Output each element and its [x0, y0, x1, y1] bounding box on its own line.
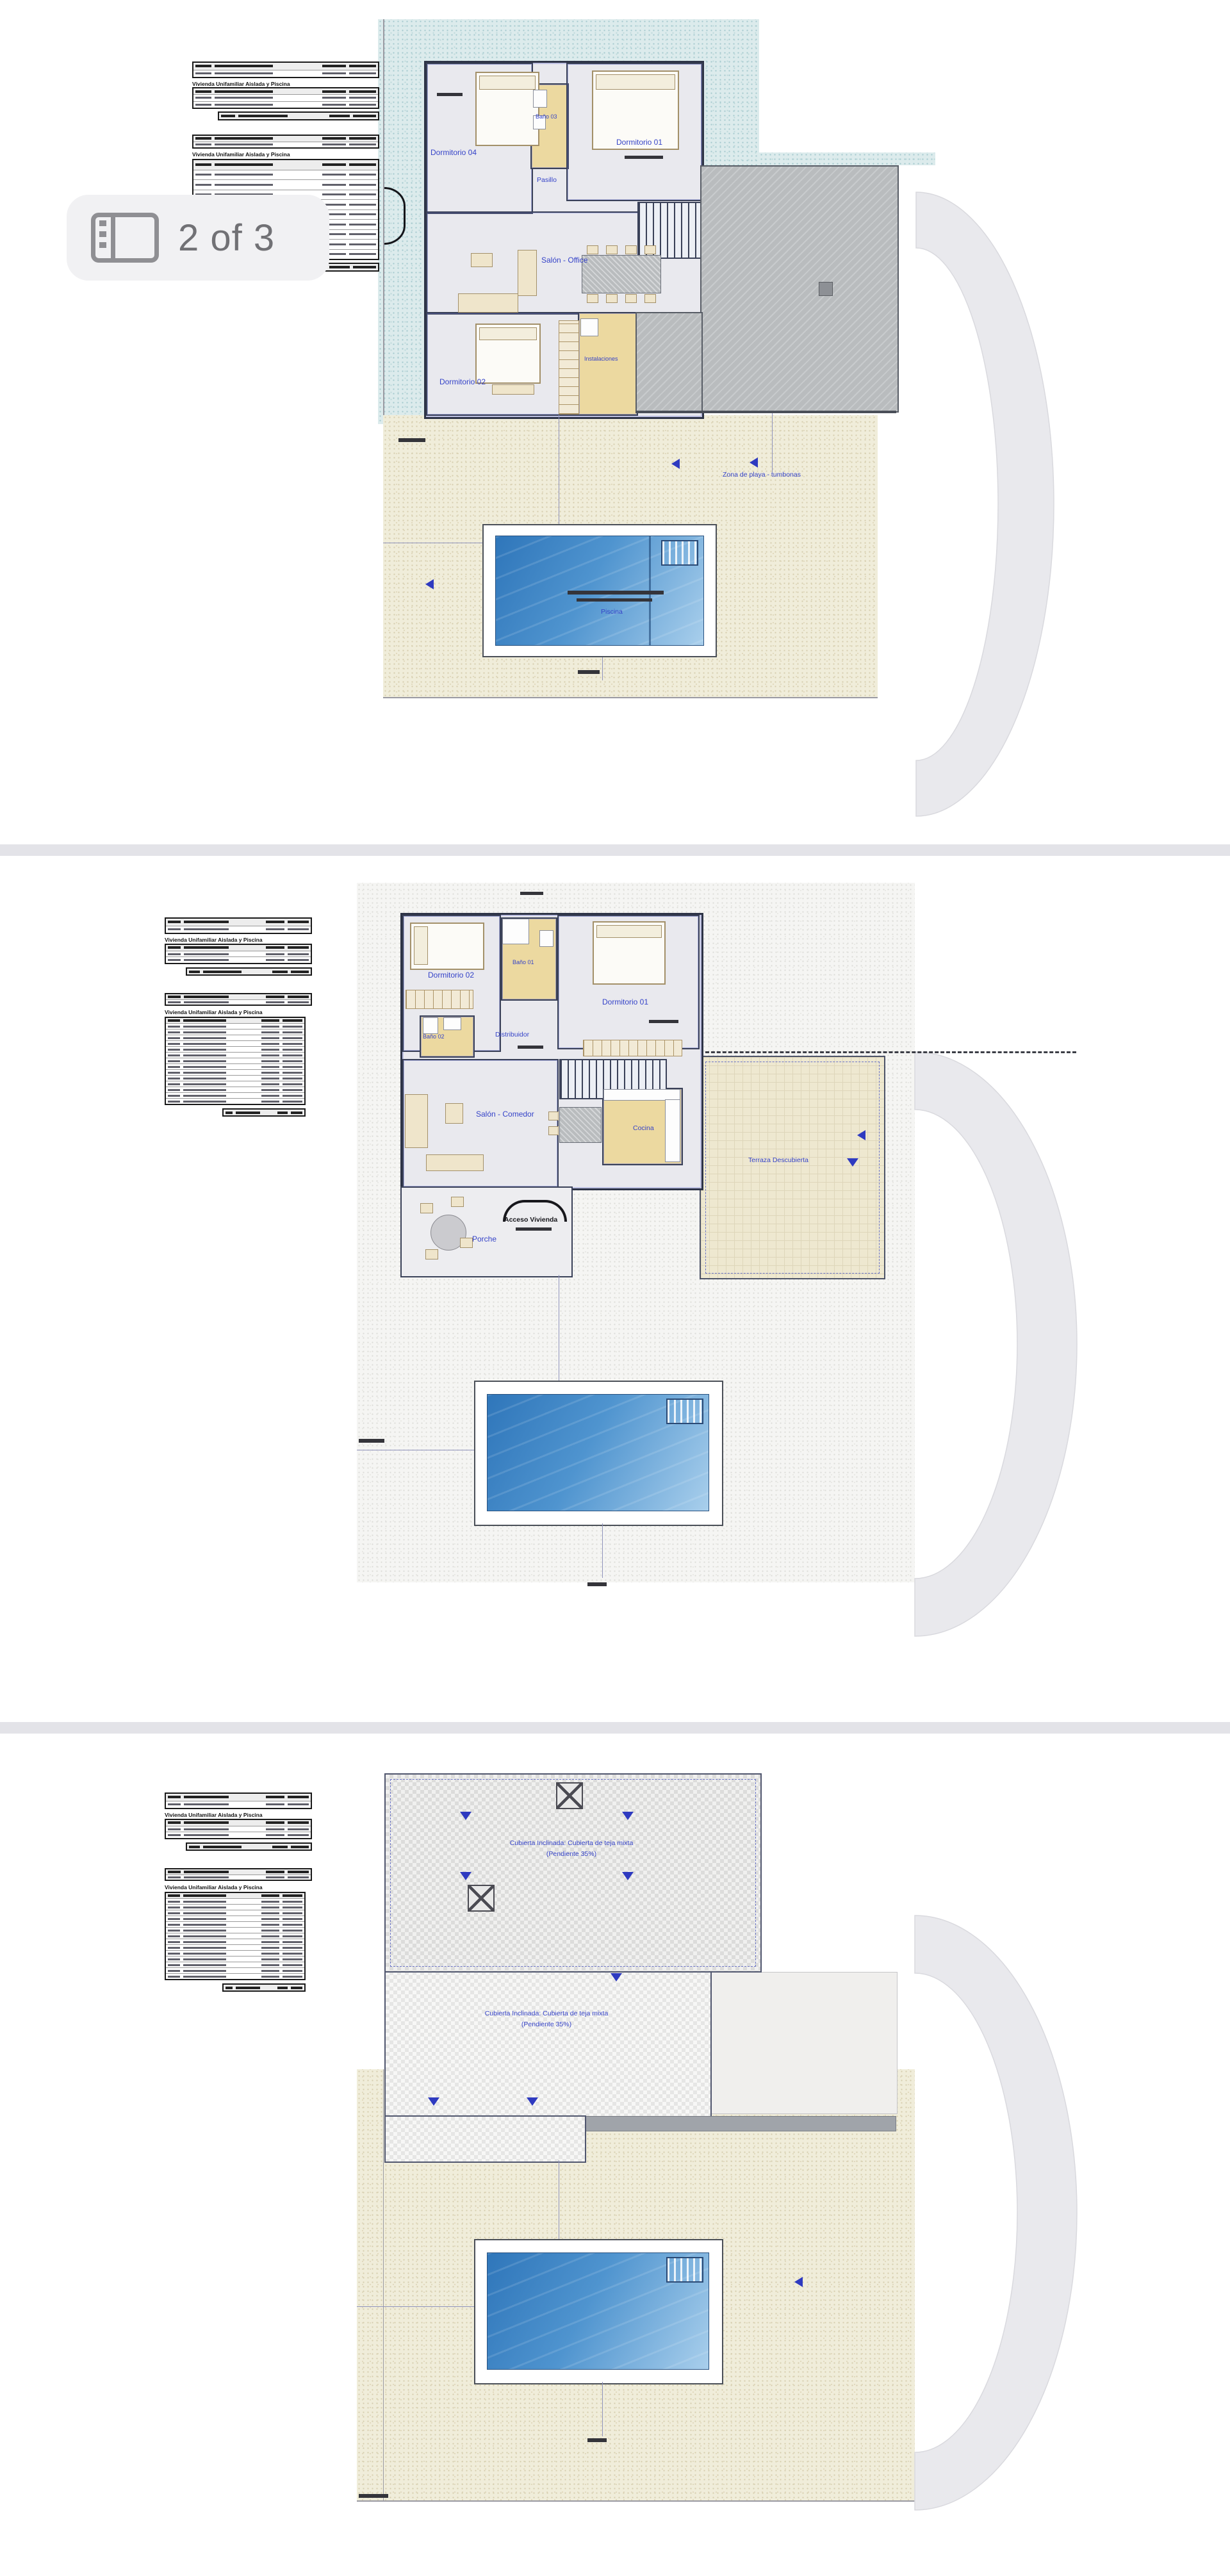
roof-label: Cubierta Inclinada: Cubierta de teja mix… — [406, 2010, 687, 2018]
area-table-total — [186, 1842, 312, 1851]
slope-arrow-icon — [622, 1872, 634, 1880]
slope-arrow-icon — [460, 1872, 471, 1880]
skylight — [556, 1782, 583, 1809]
dimension-line — [559, 2160, 559, 2239]
roof-label: (Pendiente 35%) — [406, 2021, 687, 2029]
roof-porch — [384, 2115, 586, 2163]
roof-lower — [384, 1970, 712, 2118]
image-divider — [0, 844, 1230, 856]
plot-boundary-line — [383, 2069, 384, 2502]
plot-boundary-bottom — [357, 2500, 915, 2502]
pool — [487, 2252, 709, 2370]
gallery-image-roof-plan[interactable]: Cubierta Inclinada: Cubierta de teja mix… — [0, 0, 1230, 2576]
roof-label: (Pendiente 35%) — [430, 1851, 712, 1858]
slope-arrow-icon — [460, 1812, 471, 1820]
dimension-line — [357, 2306, 474, 2307]
table-caption: Vivienda Unifamiliar Aislada y Piscina — [165, 1884, 312, 1891]
dimension-line — [602, 2382, 603, 2436]
slope-arrow-icon — [428, 2097, 439, 2106]
direction-arrow-icon — [794, 2277, 803, 2287]
table-caption: Vivienda Unifamiliar Aislada y Piscina — [165, 1812, 312, 1818]
gallery-count-text: 2 of 3 — [178, 217, 275, 259]
area-table — [165, 1892, 306, 1980]
area-table — [165, 1819, 312, 1839]
slope-arrow-icon — [527, 2097, 538, 2106]
site-boundary-arc — [910, 1913, 1079, 2513]
pool-ladder — [666, 2257, 703, 2283]
gallery-count-badge[interactable]: 2 of 3 — [67, 195, 329, 281]
annotation-mark — [587, 2438, 607, 2442]
annotation-mark — [359, 2494, 388, 2498]
slope-arrow-icon — [622, 1812, 634, 1820]
area-table-total — [222, 1983, 306, 1992]
gallery-screenshot: { "badge": { "label": "2 of 3", "icon": … — [0, 0, 1230, 2576]
skylight — [468, 1885, 495, 1912]
area-table-header — [165, 1793, 312, 1809]
lower-terrace-area — [709, 1972, 898, 2114]
roof-label: Cubierta Inclinada: Cubierta de teja mix… — [430, 1840, 712, 1848]
slope-arrow-icon — [611, 1973, 622, 1981]
gallery-icon — [91, 213, 159, 263]
area-table-header — [165, 1868, 312, 1881]
terrace-edge-strip — [584, 2116, 896, 2131]
image-divider — [0, 1722, 1230, 1734]
